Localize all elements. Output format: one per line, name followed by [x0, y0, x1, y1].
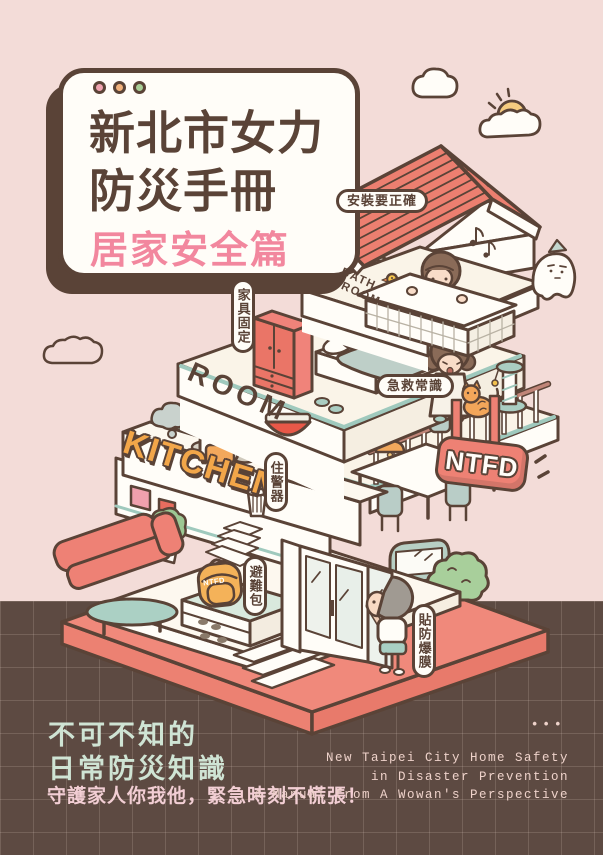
ghost	[533, 240, 575, 299]
poster-title-line1: 新北市女力	[89, 97, 324, 163]
dot-pink-icon	[93, 81, 106, 94]
callout-go-bag: 避難包	[243, 556, 267, 616]
callout-install-correctly: 安裝要正確	[336, 189, 428, 213]
card-dots	[93, 81, 146, 94]
footer-english-line3: A Manual from A Wowan's Perspective	[254, 786, 569, 805]
sofa	[51, 505, 186, 593]
cloud-icon	[413, 69, 457, 97]
footer-english-line2: in Disaster Prevention	[254, 768, 569, 787]
cloud-icon	[480, 110, 540, 137]
callout-shatterproof-film: 貼防爆膜	[412, 604, 436, 678]
dot-orange-icon	[113, 81, 126, 94]
picture-frame	[131, 486, 150, 510]
title-card: 新北市女力 防災手冊 居家安全篇	[58, 68, 360, 278]
poster-title-line2: 防災手冊	[89, 155, 277, 221]
footer-dots: •••	[532, 716, 567, 731]
callout-fix-furniture: 家具固定	[231, 279, 255, 353]
ntfd-sign-text: NTFD	[444, 444, 521, 484]
poster-subtitle: 居家安全篇	[90, 219, 290, 274]
callout-first-aid: 急救常識	[376, 374, 454, 398]
dot-green-icon	[133, 81, 146, 94]
footer-english-line1: New Taipei City Home Safety	[254, 749, 569, 768]
callout-smoke-alarm: 住警器	[264, 452, 288, 512]
footer-english: New Taipei City Home Safety in Disaster …	[254, 749, 569, 805]
cloud-icon	[44, 337, 102, 363]
